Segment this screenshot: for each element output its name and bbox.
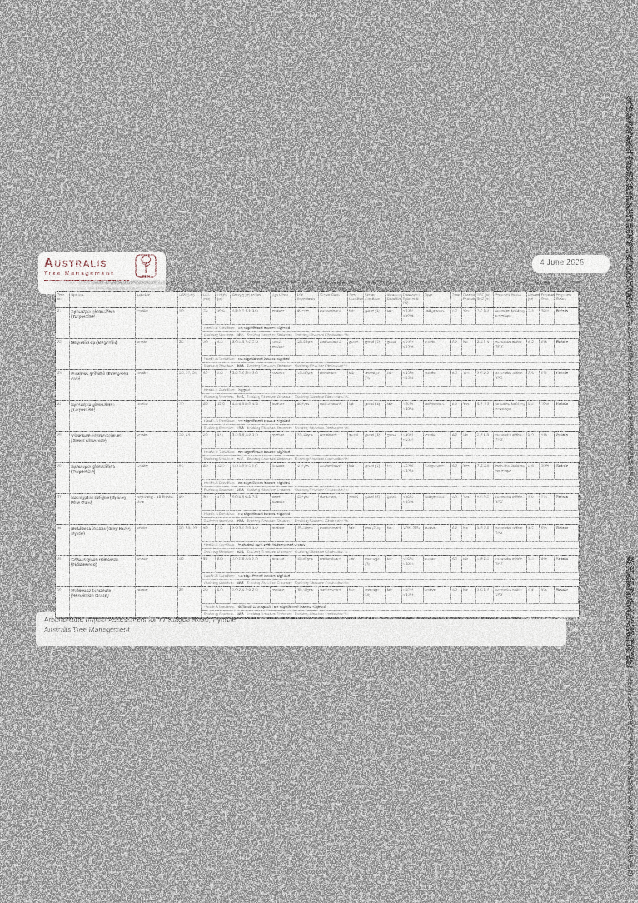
- table-cell: Retain: [555, 432, 579, 448]
- species-cell: Fraxinus griffithii (Evergreen Ash): [70, 370, 136, 400]
- evolving-structure-value: N/A: [237, 395, 244, 399]
- table-cell: Retain: [555, 587, 579, 603]
- health-condition-value: included bark with tridominant stems: [238, 543, 305, 547]
- health-condition-row: Health & Condition:included bark with tr…: [202, 542, 579, 549]
- table-cell: 2.8: [527, 370, 540, 386]
- table-cell: 0%: [540, 432, 555, 448]
- main-value-row: 7010.04.5 5.5 4.5 5.0mature40+yrscodomin…: [202, 308, 579, 325]
- table-cell: <10% <10%: [402, 401, 424, 417]
- table-cell: no works within TPZ: [494, 494, 527, 510]
- table-cell: <10% <10%: [402, 463, 424, 479]
- table-cell: 4.4: [527, 587, 540, 603]
- evolving-distance-label: Evolving Structure Distance:: [247, 395, 292, 399]
- tree-number-cell: 29: [56, 556, 70, 586]
- table-cell: good: [348, 494, 364, 510]
- table-cell: 50: [202, 525, 216, 541]
- evolving-obstruction-label: Evolving Structure Obstruction %:: [295, 581, 349, 585]
- evolving-structure-row: Evolving Structure:N/AEvolving Structure…: [202, 425, 579, 431]
- table-cell: 3.0 3.0 3.0 3.0: [231, 432, 271, 448]
- table-cell: fair: [348, 401, 364, 417]
- evolving-structure-row: Evolving Structure:N/AEvolving Structure…: [202, 394, 579, 400]
- main-value-row: 558.03.0 3.0 3.0 3.0mature15-40yrscodomi…: [202, 556, 579, 573]
- table-cell: Retain: [555, 401, 579, 417]
- table-cell: good: [348, 432, 364, 448]
- header-cell: Species: [70, 292, 136, 307]
- tree-row: 22Magnolia sp (Magnolia)onsite20204.03.0…: [56, 339, 579, 370]
- table-cell: exotic: [424, 432, 451, 448]
- header-cell: Proposed Works: [494, 292, 527, 307]
- table-cell: A2: [451, 401, 462, 417]
- table-cell: 12.0: [216, 401, 231, 417]
- table-cell: mature: [271, 556, 296, 572]
- table-cell: good: [386, 432, 402, 448]
- species-cell: Eucalyptus saligna (Sydney Blue Gum): [70, 494, 136, 524]
- footer-page-number: 58 / 93: [521, 626, 592, 636]
- table-cell: A2: [451, 587, 462, 603]
- table-cell: no works within TPZ: [494, 370, 527, 386]
- table-cell: dominant: [319, 494, 348, 510]
- evolving-structure-value: N/A: [237, 519, 244, 523]
- health-condition-label: Health & Condition:: [204, 419, 235, 423]
- health-condition-row: Health & Condition:no significant issues…: [202, 480, 579, 487]
- header-cell: Structure Condition: [386, 292, 402, 307]
- table-header-row: Tree NoSpeciesLocationDBH (cm)DSL (cm)He…: [56, 292, 579, 308]
- table-cell: low (2.5): [364, 525, 386, 541]
- table-cell: Retain: [555, 494, 579, 510]
- table-cell: 4.2: [527, 339, 540, 355]
- table-cell: 3.0 3.0 3.0 3.0: [231, 370, 271, 386]
- tree-row: 25Viburnum odoratissimum (Sweet Viburnum…: [56, 432, 579, 463]
- table-cell: A2: [451, 432, 462, 448]
- scanned-document-page: { "page": { "date": "4 June 2025", "logo…: [0, 0, 638, 903]
- evolving-structure-label: Evolving Structure:: [204, 457, 234, 461]
- species-cell: Viburnum odoratissimum (Sweet Viburnum): [70, 432, 136, 462]
- table-cell: 17.0: [216, 494, 231, 510]
- tree-number-cell: 23: [56, 370, 70, 400]
- table-cell: 15.0: [216, 463, 231, 479]
- evolving-distance-label: Evolving Structure Distance:: [247, 488, 292, 492]
- health-condition-label: Health & Condition:: [204, 605, 235, 609]
- table-cell: 80: [202, 494, 216, 510]
- table-cell: 0%: [540, 370, 555, 386]
- evolving-obstruction-label: Evolving Structure Obstruction %:: [295, 612, 349, 616]
- table-cell: fair: [348, 463, 364, 479]
- evolving-obstruction-label: Evolving Structure Obstruction %:: [295, 519, 349, 523]
- evolving-structure-label: Evolving Structure:: [204, 426, 234, 430]
- table-cell: Retain: [555, 370, 579, 386]
- location-cell: onsite: [136, 587, 178, 617]
- table-cell: 8.4 3.0: [476, 401, 494, 417]
- evolving-distance-label: Evolving Structure Distance:: [247, 364, 292, 368]
- tree-number-cell: 24: [56, 401, 70, 431]
- table-cell: 10%-25%: [402, 525, 424, 541]
- table-cell: 40+yrs: [296, 401, 319, 417]
- tree-row: 29Citharexylum spinosum (Fiddlewood)onsi…: [56, 556, 579, 587]
- health-condition-value: no significant issues sighted: [238, 419, 290, 423]
- health-condition-value: no significant issues sighted: [238, 450, 290, 454]
- main-value-row: 206.03.0 3.0 3.0 3.0mature15-40yrsdomina…: [202, 432, 579, 449]
- table-cell: mature: [271, 432, 296, 448]
- main-value-row: 204.03.0 3.0 3.0 3.0semi-mature15-40yrsc…: [202, 339, 579, 356]
- table-cell: 3.8: [527, 556, 540, 572]
- table-cell: native: [424, 587, 451, 603]
- tree-number-cell: 30: [56, 587, 70, 617]
- evolving-structure-row: Evolving Structure:N/AEvolving Structure…: [202, 363, 579, 369]
- table-cell: 9.6 3.2: [476, 494, 494, 510]
- table-cell: 2.4 1.5: [476, 432, 494, 448]
- table-cell: <10% <10%: [402, 587, 424, 603]
- report-date: 4 June 2025: [540, 258, 584, 267]
- evolving-structure-row: Evolving Structure:N/AEvolving Structure…: [202, 487, 579, 493]
- table-cell: 3.0 2.0 3.0 2.0: [231, 587, 271, 603]
- main-value-row: 406.03.0 3.0 3.0 3.0mature15-40yrsdomina…: [202, 370, 579, 387]
- species-cell: Citharexylum spinosum (Fiddlewood): [70, 556, 136, 586]
- footer-title: Arboriculture Impact Assessment for 77 K…: [44, 616, 236, 626]
- dbh-cell: 50: [178, 494, 202, 524]
- table-cell: 3.0 3.0 3.0 3.0: [231, 339, 271, 355]
- dbh-cell: 90: [178, 308, 202, 338]
- location-cell: adjoining - 16 Bristol Ave: [136, 494, 178, 524]
- table-cell: 20: [202, 587, 216, 603]
- table-cell: 70: [202, 308, 216, 324]
- table-cell: No: [462, 587, 476, 603]
- table-cell: average (3): [364, 370, 386, 386]
- table-cell: A2: [451, 494, 462, 510]
- table-cell: 0%: [540, 556, 555, 572]
- table-cell: codominant: [319, 556, 348, 572]
- logo-subtitle: Tree Management: [44, 272, 130, 278]
- dbh-cell: 20: [178, 339, 202, 369]
- table-cell: 40+yrs: [296, 308, 319, 324]
- table-cell: no works within TPZ: [494, 339, 527, 355]
- evolving-structure-value: N/A: [237, 550, 244, 554]
- table-cell: 4.5 6.0 6.0 4.5: [231, 401, 271, 417]
- table-cell: exotic: [424, 370, 451, 386]
- table-cell: 4.8 2.3: [476, 556, 494, 572]
- scan-smudge-line: [46, 287, 602, 290]
- table-cell: exotic: [424, 339, 451, 355]
- footer-left: Arboriculture Impact Assessment for 77 K…: [44, 616, 236, 636]
- row-detail: 204.03.0 3.0 3.0 3.0semi-mature15-40yrsc…: [202, 339, 579, 369]
- table-cell: semi-mature: [271, 339, 296, 355]
- table-cell: 2.4 1.5: [476, 339, 494, 355]
- table-cell: mature: [271, 370, 296, 386]
- table-cell: Yes: [462, 401, 476, 417]
- table-cell: 0%: [540, 587, 555, 603]
- table-cell: good (4): [364, 494, 386, 510]
- table-cell: fair: [348, 587, 364, 603]
- table-cell: fair: [386, 525, 402, 541]
- health-condition-value: lopped: [238, 388, 250, 392]
- evolving-obstruction-label: Evolving Structure Obstruction %:: [295, 364, 349, 368]
- tree-number-cell: 21: [56, 308, 70, 338]
- row-detail: 406.03.0 3.0 3.0 3.0mature15-40yrsdomina…: [202, 370, 579, 400]
- table-cell: A2: [451, 525, 462, 541]
- health-condition-value: difficult to inspect / no significant is…: [238, 605, 326, 609]
- header-cell: Location: [136, 292, 178, 307]
- species-cell: Syncarpia glomulifera (Turpentine): [70, 401, 136, 431]
- table-cell: no works within TPZ: [494, 432, 527, 448]
- evolving-distance-label: Evolving Structure Distance:: [247, 519, 292, 523]
- evolving-distance-label: Evolving Structure Distance:: [247, 612, 292, 616]
- header-cell: Crown Class: [319, 292, 348, 307]
- table-cell: fair: [348, 308, 364, 324]
- logo-rest: USTRALIS: [54, 259, 107, 269]
- scan-edge-artifact: [628, 676, 633, 876]
- table-cell: codominant: [319, 587, 348, 603]
- table-cell: 15-40yrs: [296, 587, 319, 603]
- table-cell: 55: [202, 556, 216, 572]
- table-cell: A2: [451, 370, 462, 386]
- evolving-structure-value: N/A: [237, 364, 244, 368]
- health-condition-row: Health & Condition:no significant issues…: [202, 325, 579, 332]
- table-cell: good: [386, 339, 402, 355]
- dbh-cell: 20, 15, 20: [178, 525, 202, 555]
- header-cell: Tree No: [56, 292, 70, 307]
- table-cell: codominant: [319, 308, 348, 324]
- table-cell: <10% <10%: [402, 494, 424, 510]
- table-cell: No: [462, 432, 476, 448]
- row-detail: 8017.06.0 6.0 6.5 7.5semi-mature40+yrsdo…: [202, 494, 579, 524]
- location-cell: onsite: [136, 525, 178, 555]
- table-cell: codominant: [319, 401, 348, 417]
- header-cell: Type: [424, 292, 451, 307]
- health-condition-row: Health & Condition:no significant issues…: [202, 511, 579, 518]
- table-cell: 15-40yrs: [296, 556, 319, 572]
- species-cell: Magnolia sp (Magnolia): [70, 339, 136, 369]
- table-cell: codominant: [319, 525, 348, 541]
- table-cell: Retain: [555, 339, 579, 355]
- table-cell: fair: [386, 463, 402, 479]
- table-cell: fair: [386, 308, 402, 324]
- table-cell: Retain: [555, 308, 579, 324]
- table-cell: native: [424, 525, 451, 541]
- table-cell: no works within TPZ: [494, 525, 527, 541]
- tree-row: 27Eucalyptus saligna (Sydney Blue Gum)ad…: [56, 494, 579, 525]
- table-cell: exotic: [424, 556, 451, 572]
- evolving-structure-value: N/A: [237, 488, 244, 492]
- table-cell: 3.6 2.0: [476, 525, 494, 541]
- table-cell: mature: [271, 308, 296, 324]
- table-cell: 6.6: [527, 463, 540, 479]
- table-cell: A2: [451, 339, 462, 355]
- evolving-structure-value: N/A: [237, 333, 244, 337]
- table-cell: <10% <10%: [402, 432, 424, 448]
- health-condition-label: Health & Condition:: [204, 574, 235, 578]
- header-cell: DBH (cm): [178, 292, 202, 307]
- header-cell: TPZ (m) SRZ (m): [476, 292, 494, 307]
- health-condition-value: no significant issues sighted: [238, 326, 290, 330]
- health-condition-value: no significant issues sighted: [238, 512, 290, 516]
- table-cell: 3.2: [527, 525, 540, 541]
- dbh-cell: 60: [178, 463, 202, 493]
- logo-name: AUSTRALIS: [44, 256, 130, 269]
- species-cell: Syncarpia glomulifera (Turpentine): [70, 308, 136, 338]
- table-cell: good: [386, 494, 402, 510]
- evolving-structure-row: Evolving Structure:N/AEvolving Structure…: [202, 518, 579, 524]
- health-condition-label: Health & Condition:: [204, 388, 235, 392]
- health-condition-row: Health & Condition:no significant issues…: [202, 356, 579, 363]
- table-cell: codominant: [319, 463, 348, 479]
- table-cell: No: [462, 556, 476, 572]
- table-cell: 80: [202, 463, 216, 479]
- evolving-structure-label: Evolving Structure:: [204, 519, 234, 523]
- evolving-structure-row: Evolving Structure:N/AEvolving Structure…: [202, 456, 579, 462]
- table-body: 21Syncarpia glomulifera (Turpentine)onsi…: [56, 308, 579, 618]
- main-value-row: 8015.05.0 5.0 5.0 5.0mature40+yrscodomin…: [202, 463, 579, 480]
- evolving-structure-label: Evolving Structure:: [204, 488, 234, 492]
- footer-company: Australis Tree Management: [44, 626, 236, 636]
- table-cell: 10%: [540, 401, 555, 417]
- footer-reference: Reference 20252167.3: [521, 616, 592, 626]
- evolving-structure-label: Evolving Structure:: [204, 364, 234, 368]
- health-condition-row: Health & Condition:no significant issues…: [202, 573, 579, 580]
- table-cell: 80: [202, 401, 216, 417]
- table-cell: 7.2 3.4: [476, 308, 494, 324]
- table-cell: average (3): [364, 587, 386, 603]
- location-cell: onsite: [136, 339, 178, 369]
- table-cell: semi-mature: [271, 494, 296, 510]
- location-cell: onsite: [136, 556, 178, 586]
- header-cell: Tree Condition: [348, 292, 364, 307]
- tree-number-cell: 27: [56, 494, 70, 524]
- table-cell: mature: [271, 401, 296, 417]
- evolving-structure-value: N/A: [237, 612, 244, 616]
- table-cell: dominant: [319, 432, 348, 448]
- scan-edge-artifact: [626, 556, 634, 668]
- table-cell: indigenous: [424, 463, 451, 479]
- table-cell: 10.0: [216, 308, 231, 324]
- table-cell: 10%: [540, 463, 555, 479]
- tree-number-cell: 26: [56, 463, 70, 493]
- tree-row: 23Fraxinus griffithii (Evergreen Ash)ons…: [56, 370, 579, 401]
- header-cell: Age Class: [271, 292, 296, 307]
- table-cell: Yes: [462, 463, 476, 479]
- main-value-row: 507.03.0 3.0 3.0 3.0mature15-40yrscodomi…: [202, 525, 579, 542]
- table-cell: 6.0: [216, 587, 231, 603]
- health-condition-label: Health & Condition:: [204, 543, 235, 547]
- dbh-cell: 30, 20, 20: [178, 370, 202, 400]
- evolving-distance-label: Evolving Structure Distance:: [247, 550, 292, 554]
- location-cell: onsite: [136, 432, 178, 462]
- main-value-row: 8012.04.5 6.0 6.0 4.5mature40+yrscodomin…: [202, 401, 579, 418]
- health-condition-row: Health & Condition:difficult to inspect …: [202, 604, 579, 611]
- evolving-structure-label: Evolving Structure:: [204, 550, 234, 554]
- header-cell: Life Expectancy: [296, 292, 319, 307]
- health-condition-label: Health & Condition:: [204, 357, 235, 361]
- dbh-cell: 10, 15: [178, 432, 202, 462]
- evolving-structure-value: N/A: [237, 581, 244, 585]
- table-cell: 6.0: [216, 370, 231, 386]
- tree-row: 26Syncarpia glomulifera (Turpentine)onsi…: [56, 463, 579, 494]
- table-cell: No: [462, 525, 476, 541]
- table-cell: 15-40yrs: [296, 339, 319, 355]
- dbh-cell: 25: [178, 587, 202, 617]
- table-cell: 5.0 5.0 5.0 5.0: [231, 463, 271, 479]
- header-cell: Canopy (m) radius: [231, 292, 271, 307]
- health-condition-value: no significant issues sighted: [238, 357, 290, 361]
- table-cell: fair: [386, 587, 402, 603]
- evolving-obstruction-label: Evolving Structure Obstruction %:: [295, 550, 349, 554]
- table-cell: indigenous: [424, 401, 451, 417]
- table-cell: 3.0 3.0 3.0 3.0: [231, 556, 271, 572]
- dbh-cell: 40: [178, 556, 202, 586]
- species-cell: Melaleuca bracteata (Revolution Green): [70, 587, 136, 617]
- evolving-distance-label: Evolving Structure Distance:: [247, 581, 292, 585]
- row-detail: 558.03.0 3.0 3.0 3.0mature15-40yrscodomi…: [202, 556, 579, 586]
- table-cell: Retain: [555, 556, 579, 572]
- table-cell: 0%: [540, 494, 555, 510]
- table-cell: A2: [451, 463, 462, 479]
- evolving-obstruction-label: Evolving Structure Obstruction %:: [295, 457, 349, 461]
- table-cell: No: [462, 339, 476, 355]
- evolving-structure-row: Evolving Structure:N/AEvolving Structure…: [202, 549, 579, 555]
- health-condition-label: Health & Condition:: [204, 481, 235, 485]
- table-cell: indigenous: [424, 308, 451, 324]
- evolving-distance-label: Evolving Structure Distance:: [247, 333, 292, 337]
- species-cell: Syncarpia glomulifera (Turpentine): [70, 463, 136, 493]
- table-cell: good (4): [364, 339, 386, 355]
- health-condition-value: no significant issues sighted: [238, 481, 290, 485]
- table-cell: A2: [451, 556, 462, 572]
- table-cell: fair: [348, 370, 364, 386]
- evolving-structure-label: Evolving Structure:: [204, 333, 234, 337]
- table-cell: 6.0: [527, 494, 540, 510]
- table-cell: 4.5 5.5 4.5 5.0: [231, 308, 271, 324]
- header-cell: Proposed Encr.: [540, 292, 555, 307]
- table-cell: 15-40yrs: [296, 525, 319, 541]
- row-detail: 507.03.0 3.0 3.0 3.0mature15-40yrscodomi…: [202, 525, 579, 555]
- footer-right: Reference 20252167.3 58 / 93: [521, 616, 592, 636]
- logo-initial: A: [44, 255, 54, 270]
- table-cell: 7.0: [216, 525, 231, 541]
- tree-number-cell: 25: [56, 432, 70, 462]
- table-cell: Yes: [462, 370, 476, 386]
- table-cell: mature: [271, 525, 296, 541]
- table-cell: 3.0 3.0 3.0 3.0: [231, 525, 271, 541]
- header-cell: Council Protected: [462, 292, 476, 307]
- table-cell: 15-40yrs: [296, 370, 319, 386]
- tree-number-cell: 22: [56, 339, 70, 369]
- table-cell: 8.0: [216, 556, 231, 572]
- health-condition-value: no significant issues sighted: [238, 574, 290, 578]
- table-cell: 28%: [540, 308, 555, 324]
- logo-rule: [44, 280, 130, 281]
- evolving-structure-value: N/A: [237, 426, 244, 430]
- table-cell: includes building envelope: [494, 463, 527, 479]
- table-cell: mature: [271, 587, 296, 603]
- table-cell: 6.0 6.0 6.5 7.5: [231, 494, 271, 510]
- table-cell: 5.0: [527, 432, 540, 448]
- header-cell: Deadwood Epicormic (%): [402, 292, 424, 307]
- evolving-structure-row: Evolving Structure:N/AEvolving Structure…: [202, 580, 579, 586]
- health-condition-label: Health & Condition:: [204, 450, 235, 454]
- evolving-structure-label: Evolving Structure:: [204, 395, 234, 399]
- table-cell: <10% <10%: [402, 339, 424, 355]
- evolving-structure-row: Evolving Structure:N/AEvolving Structure…: [202, 332, 579, 338]
- table-cell: good (4): [364, 401, 386, 417]
- table-cell: fair: [386, 401, 402, 417]
- tree-logo-icon: [135, 254, 157, 280]
- scan-smudge-line: [46, 281, 602, 284]
- table-cell: 3.5: [527, 308, 540, 324]
- evolving-structure-value: N/A: [237, 457, 244, 461]
- health-condition-row: Health & Condition:no significant issues…: [202, 449, 579, 456]
- table-cell: good (4): [364, 308, 386, 324]
- tree-row: 21Syncarpia glomulifera (Turpentine)onsi…: [56, 308, 579, 339]
- header-cell: Distance (m): [527, 292, 540, 307]
- table-cell: 0%: [540, 339, 555, 355]
